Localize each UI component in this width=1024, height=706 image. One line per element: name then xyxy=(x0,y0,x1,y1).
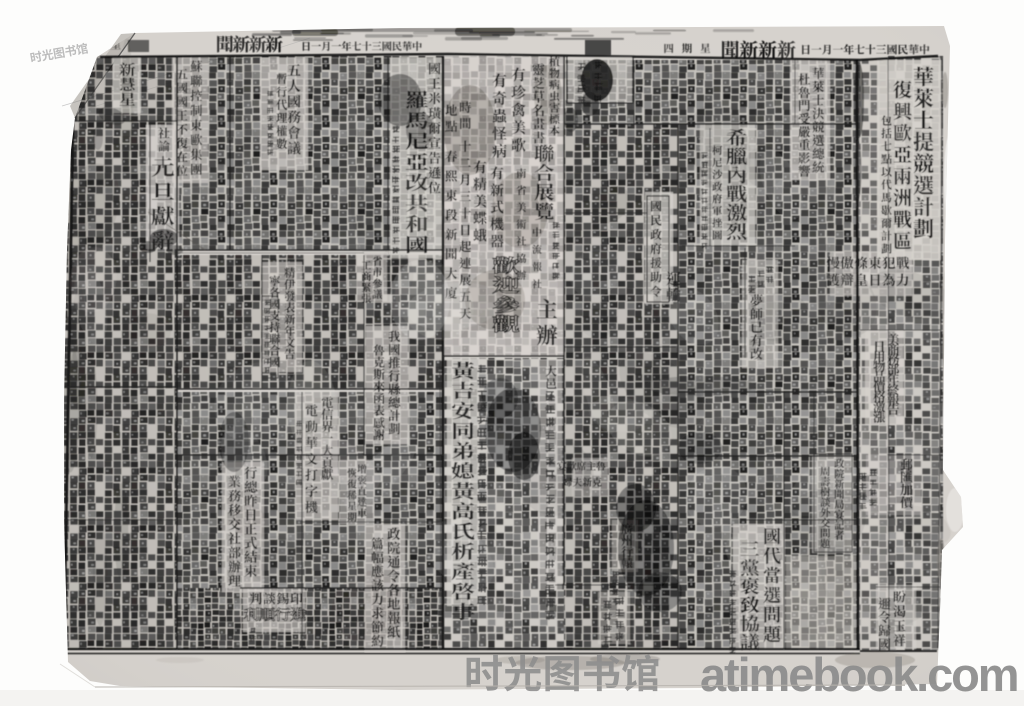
svg-text:atimebook.com: atimebook.com xyxy=(700,648,1017,701)
